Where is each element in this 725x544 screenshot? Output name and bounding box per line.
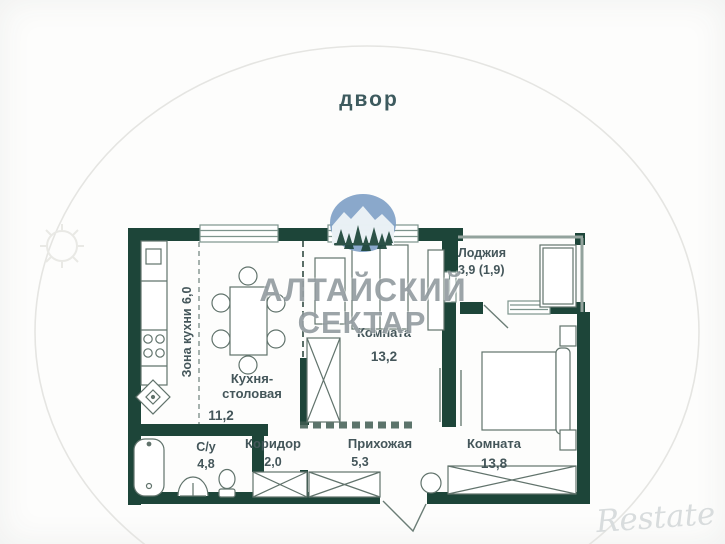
room-area: 2,0 xyxy=(245,455,301,469)
corridor-wardrobe xyxy=(253,472,307,497)
room-name: Лоджия xyxy=(458,246,506,260)
floorplan-image: двор Лоджия 3,9 (1,9) Комната 13,2 Комна… xyxy=(0,0,725,544)
room-label-kitchen: Кухня-столовая xyxy=(206,372,298,402)
room-label-kitchen-zone: Зона кухни 6,0 xyxy=(178,270,196,394)
watermark-line1: АЛТАЙСКИЙ xyxy=(259,272,466,309)
room-area: 4,8 xyxy=(196,457,215,471)
wardrobe-room-a xyxy=(307,338,340,422)
watermark-line2: СЕКТАР xyxy=(298,305,427,341)
agency-logo-icon xyxy=(322,193,406,261)
sun-icon xyxy=(40,224,84,268)
pouf-icon xyxy=(421,473,441,493)
room-name: Прихожая xyxy=(348,437,412,452)
room-area-kitchen: 11,2 xyxy=(208,408,234,424)
room-area: 13,2 xyxy=(357,349,411,365)
bathtub-icon xyxy=(134,439,164,496)
courtyard-label: двор xyxy=(339,88,399,112)
entrance-door xyxy=(383,501,426,531)
room-label-bathroom: С/у 4,8 xyxy=(196,440,215,472)
room-name: С/у xyxy=(196,440,215,454)
bed xyxy=(482,352,556,430)
room-label-room-b: Комната 13,8 xyxy=(467,437,521,471)
room-name: Зона кухни xyxy=(180,308,194,377)
room-label-corridor: Коридор 2,0 xyxy=(245,437,301,469)
room-label-hallway: Прихожая 5,3 xyxy=(348,437,412,469)
room-area: 5,3 xyxy=(308,455,412,469)
toilet-icon xyxy=(219,470,235,498)
room-name: Коридор xyxy=(245,437,301,452)
nightstand xyxy=(560,326,576,346)
loggia-cabinet xyxy=(540,245,576,307)
kitchen-counter xyxy=(136,241,170,414)
washbasin-icon xyxy=(178,477,208,496)
room-area: 6,0 xyxy=(180,287,194,304)
headboard xyxy=(556,348,570,434)
room-name: Комната xyxy=(467,437,521,452)
nightstand xyxy=(560,430,576,450)
bathroom-fixtures xyxy=(134,439,235,497)
hallway-wardrobe xyxy=(309,472,380,497)
balcony-door xyxy=(484,305,508,328)
room-area: 13,8 xyxy=(467,456,521,472)
